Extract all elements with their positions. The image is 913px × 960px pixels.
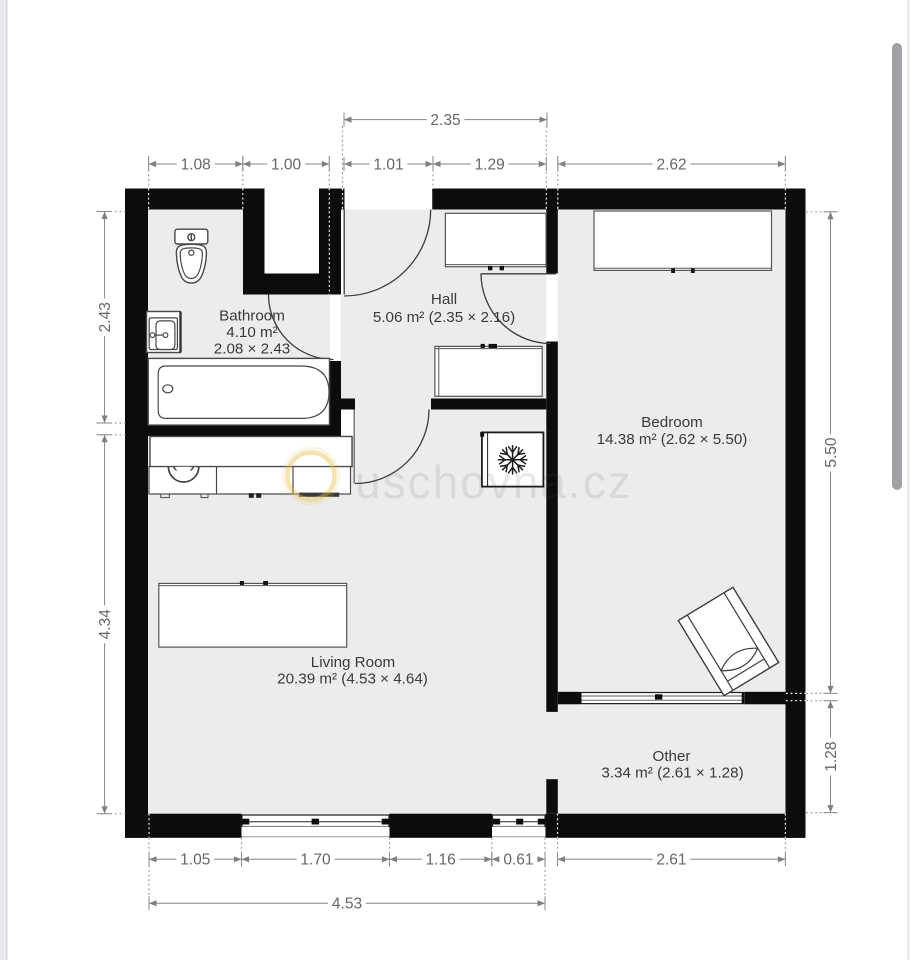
svg-text:Bathroom: Bathroom bbox=[219, 308, 285, 325]
svg-text:2.08 × 2.43: 2.08 × 2.43 bbox=[214, 341, 290, 358]
svg-text:0.61: 0.61 bbox=[503, 852, 533, 869]
svg-text:2.62: 2.62 bbox=[657, 156, 687, 173]
svg-text:Other: Other bbox=[653, 748, 691, 765]
svg-text:3.34 m² (2.61 × 1.28): 3.34 m² (2.61 × 1.28) bbox=[601, 765, 743, 782]
svg-text:Hall: Hall bbox=[431, 291, 457, 308]
svg-text:4.10 m²: 4.10 m² bbox=[226, 324, 278, 341]
svg-text:1.05: 1.05 bbox=[180, 852, 210, 869]
svg-text:4.53: 4.53 bbox=[332, 896, 362, 913]
svg-text:1.08: 1.08 bbox=[181, 156, 211, 173]
svg-text:1.28: 1.28 bbox=[823, 742, 840, 772]
svg-text:Bedroom: Bedroom bbox=[641, 414, 703, 431]
svg-text:2.61: 2.61 bbox=[656, 852, 686, 869]
svg-text:14.38 m² (2.62 × 5.50): 14.38 m² (2.62 × 5.50) bbox=[597, 431, 748, 448]
svg-text:2.43: 2.43 bbox=[97, 302, 114, 332]
svg-text:1.29: 1.29 bbox=[475, 156, 505, 173]
svg-text:20.39 m² (4.53 × 4.64): 20.39 m² (4.53 × 4.64) bbox=[277, 671, 428, 688]
svg-text:1.70: 1.70 bbox=[300, 852, 331, 869]
svg-text:Living Room: Living Room bbox=[311, 654, 395, 671]
svg-text:1.01: 1.01 bbox=[373, 156, 403, 173]
svg-text:4.34: 4.34 bbox=[97, 609, 114, 640]
svg-text:uschovna.cz: uschovna.cz bbox=[355, 456, 633, 508]
svg-text:5.06 m² (2.35 × 2.16): 5.06 m² (2.35 × 2.16) bbox=[373, 309, 515, 326]
svg-text:1.00: 1.00 bbox=[271, 156, 302, 173]
svg-text:1.16: 1.16 bbox=[426, 852, 456, 869]
svg-text:2.35: 2.35 bbox=[430, 112, 460, 129]
svg-text:5.50: 5.50 bbox=[823, 437, 840, 468]
